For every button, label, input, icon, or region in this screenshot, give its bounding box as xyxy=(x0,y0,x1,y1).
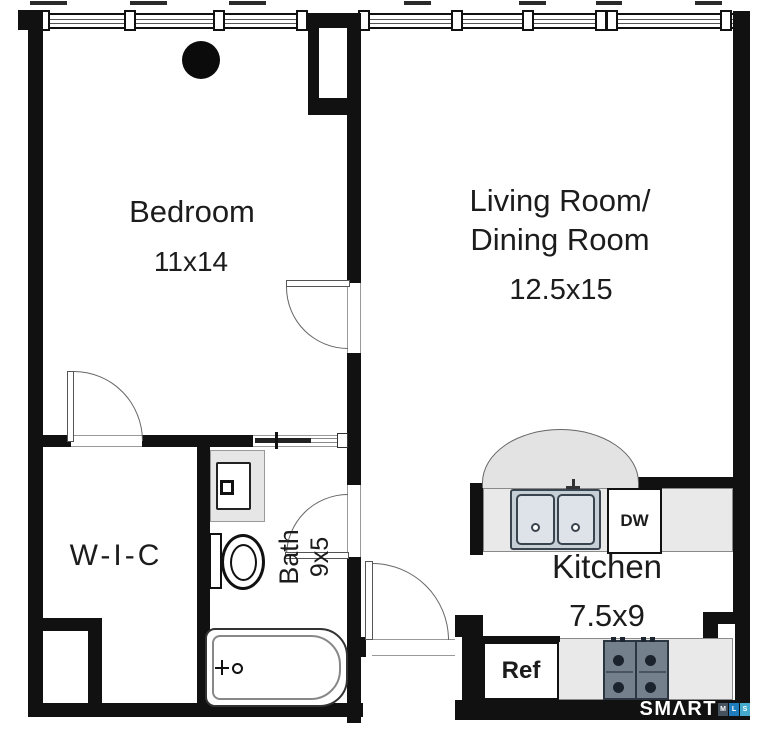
bedroom-doorway xyxy=(347,283,361,353)
wall xyxy=(142,435,255,447)
wall xyxy=(462,637,483,713)
stove-knob xyxy=(641,637,646,642)
vanity-sink xyxy=(220,480,234,495)
living-room-label-line2: Dining Room xyxy=(420,220,700,259)
bedroom-label: Bedroom xyxy=(72,194,312,230)
window-mullion xyxy=(296,10,308,31)
tub-faucet-handle xyxy=(221,660,223,675)
pocket-door-jamb xyxy=(337,433,348,448)
entry-door-leaf xyxy=(365,561,373,640)
stove-grid xyxy=(639,671,666,673)
sink-drain xyxy=(531,523,540,532)
wic-label: W-I-C xyxy=(26,539,206,573)
window-sill-dash xyxy=(404,1,431,5)
smart-mls-logo: SMΛRT M L S xyxy=(610,699,750,719)
pocket-door-track xyxy=(311,438,339,443)
window-sill-dash xyxy=(695,1,722,5)
window-sill-dash xyxy=(30,1,67,5)
kitchen-label: Kitchen xyxy=(487,548,727,586)
dishwasher-label: DW xyxy=(620,511,648,531)
bedroom-door-leaf xyxy=(286,280,350,287)
kitchen-dimensions: 7.5x9 xyxy=(507,598,707,634)
living-room-dimensions: 12.5x15 xyxy=(461,274,661,307)
stove-knob xyxy=(620,637,625,642)
bedroom-dimensions: 11x14 xyxy=(91,246,291,278)
bath-dimensions: 9x5 xyxy=(305,497,336,617)
wall xyxy=(347,353,361,485)
window-mullion xyxy=(451,10,463,31)
pocket-door-pull xyxy=(275,432,278,449)
breakfast-bar-arch xyxy=(482,429,639,488)
bath-label-block: Bath 9x5 xyxy=(274,497,338,617)
stove-burner xyxy=(645,682,656,693)
tub-faucet xyxy=(232,663,243,674)
living-room-label: Living Room/ Dining Room xyxy=(420,181,700,259)
wic-door-swing xyxy=(74,371,143,441)
sink-drain xyxy=(571,523,580,532)
duct-chase-cavity xyxy=(319,28,347,98)
refrigerator-label: Ref xyxy=(502,657,541,685)
wall xyxy=(470,483,483,555)
stove-burner xyxy=(613,655,624,666)
wall xyxy=(88,618,102,710)
smart-mls-wordmark: SMΛRT xyxy=(640,699,718,719)
wall xyxy=(347,13,361,283)
logo-badge-m: M xyxy=(718,703,728,716)
floor-plan: DW Ref Bedroom 11x14 Living Room/ Dining… xyxy=(0,0,767,734)
stove-divider xyxy=(635,642,637,698)
sink-faucet xyxy=(572,479,575,488)
stove-burner xyxy=(645,655,656,666)
toilet-bowl-inner xyxy=(230,544,257,581)
window-band-bedroom xyxy=(42,13,308,29)
stove-knob xyxy=(650,637,655,642)
wall xyxy=(28,435,71,447)
sink-basin-right xyxy=(557,494,595,545)
stove-burner xyxy=(613,682,624,693)
bath-doorway xyxy=(347,485,361,557)
window-sill-dash xyxy=(130,1,167,5)
window-mullion xyxy=(522,10,534,31)
window-mullion xyxy=(720,10,732,31)
sink-basin-left xyxy=(516,494,555,545)
wall xyxy=(28,13,43,717)
stove-grid xyxy=(606,671,633,673)
wall xyxy=(347,637,366,657)
wall xyxy=(455,615,483,637)
dishwasher: DW xyxy=(607,488,662,554)
bedroom-door-swing xyxy=(286,287,348,349)
entry-door-swing xyxy=(372,563,449,640)
window-mullion xyxy=(213,10,225,31)
window-sill-dash xyxy=(519,1,546,5)
stove-knob xyxy=(611,637,616,642)
window-sill-dash xyxy=(229,1,266,5)
window-mullion xyxy=(124,10,136,31)
living-room-label-line1: Living Room/ xyxy=(420,181,700,220)
entry-threshold xyxy=(372,639,455,656)
refrigerator: Ref xyxy=(483,642,559,700)
window-mullion xyxy=(606,10,618,31)
structural-column xyxy=(182,41,220,79)
window-sill-dash xyxy=(596,1,622,5)
bath-label: Bath xyxy=(274,497,305,617)
logo-badge-s: S xyxy=(740,703,750,716)
window-band-living xyxy=(357,13,733,29)
pocket-door-leaf xyxy=(255,438,311,443)
logo-badge-l: L xyxy=(729,703,739,716)
wic-door-leaf xyxy=(67,371,74,442)
